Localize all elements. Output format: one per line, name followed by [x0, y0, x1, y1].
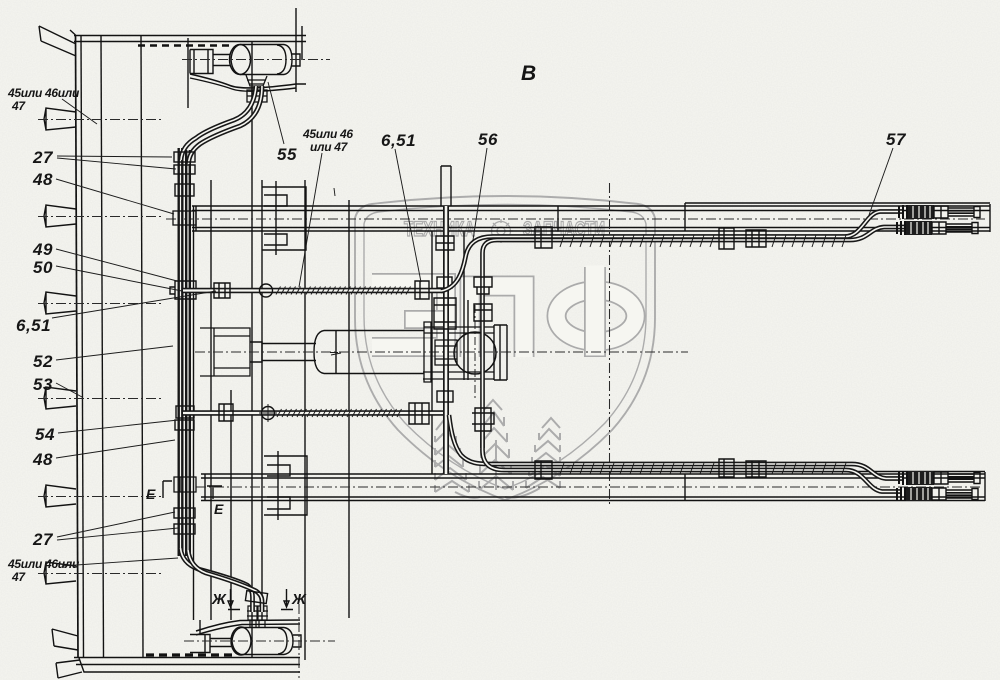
svg-text:Е: Е: [146, 486, 156, 502]
svg-text:47: 47: [11, 570, 26, 584]
svg-text:48: 48: [32, 450, 53, 469]
svg-text:45или 46или: 45или 46или: [7, 557, 80, 571]
svg-text:45или 46или: 45или 46или: [7, 86, 80, 100]
svg-text:27: 27: [32, 530, 54, 549]
svg-text:или 47: или 47: [310, 140, 349, 154]
svg-text:48: 48: [32, 170, 53, 189]
svg-text:56: 56: [478, 130, 498, 149]
svg-text:54: 54: [35, 425, 55, 444]
svg-text:53: 53: [33, 375, 53, 394]
svg-text:50: 50: [33, 258, 53, 277]
svg-text:Ж: Ж: [211, 591, 227, 608]
svg-text:6,51: 6,51: [16, 316, 51, 335]
svg-text:6,51: 6,51: [381, 131, 416, 150]
svg-text:52: 52: [33, 352, 53, 371]
svg-text:45или 46: 45или 46: [302, 127, 353, 141]
svg-text:49: 49: [32, 240, 53, 259]
svg-text:55: 55: [277, 145, 297, 164]
svg-text:57: 57: [886, 130, 907, 149]
svg-text:Е: Е: [214, 501, 224, 517]
svg-text:Ж: Ж: [291, 591, 307, 608]
svg-text:27: 27: [32, 148, 54, 167]
svg-text:В: В: [521, 62, 536, 85]
svg-text:47: 47: [11, 99, 26, 113]
